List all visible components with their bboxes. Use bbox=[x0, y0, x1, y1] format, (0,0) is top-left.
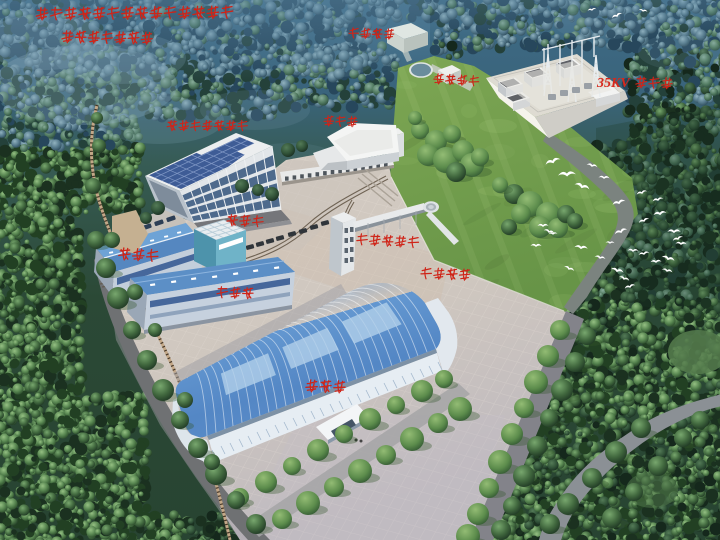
svg-text:35KV: 35KV bbox=[596, 76, 631, 91]
